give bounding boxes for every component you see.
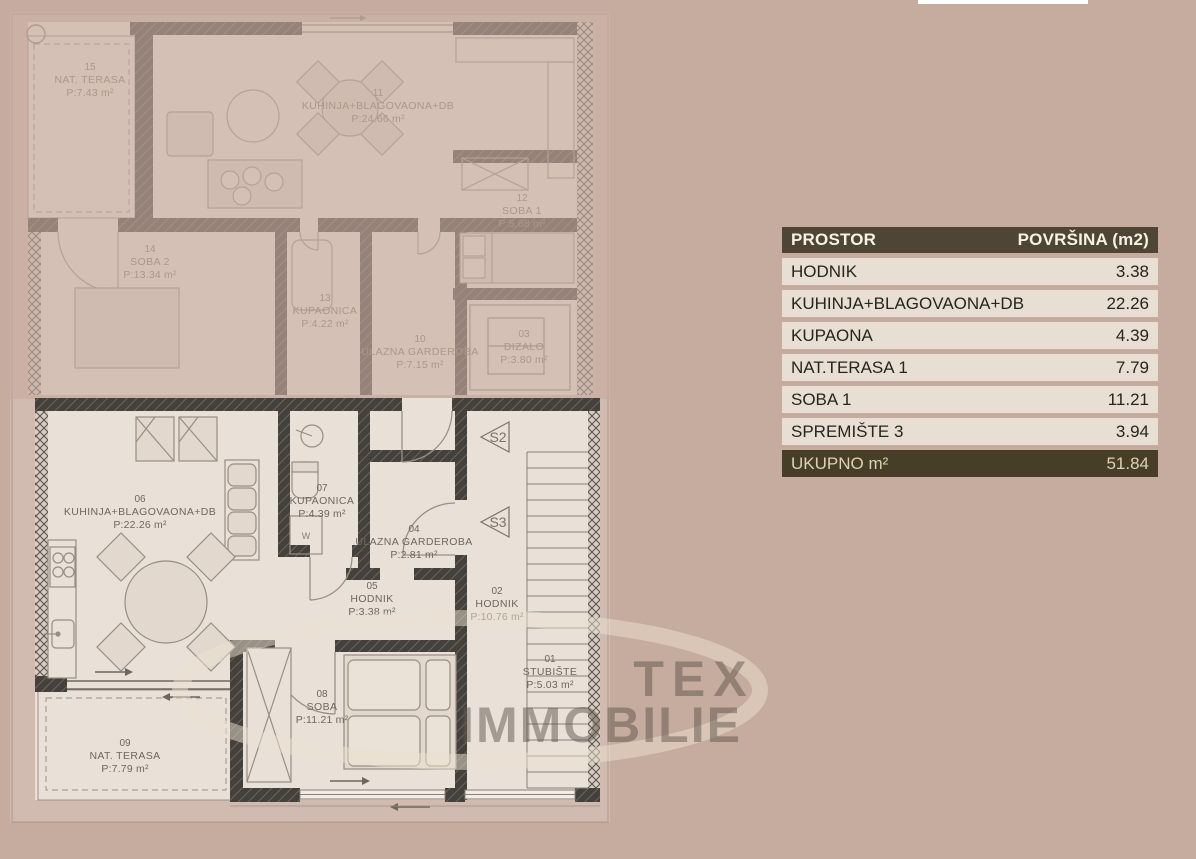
header-area-label: POVRŠINA (m2): [1018, 230, 1149, 250]
area-row: KUPAONA4.39: [782, 322, 1158, 349]
area-row: HODNIK3.38: [782, 258, 1158, 285]
area-row-space: SPREMIŠTE 3: [791, 422, 903, 442]
area-row-space: HODNIK: [791, 262, 857, 282]
area-table: PROSTOR POVRŠINA (m2) HODNIK3.38KUHINJA+…: [782, 227, 1158, 477]
watermark-line2: IMMOBILIE: [460, 697, 742, 753]
kitchen-counter: [44, 540, 76, 678]
area-row-value: 4.39: [1116, 326, 1149, 346]
terrace-09: [38, 690, 234, 800]
stair-marker-label-S2: S2: [489, 429, 506, 445]
area-row: SPREMIŠTE 33.94: [782, 418, 1158, 445]
washer-label: W: [302, 531, 311, 541]
area-table-header: PROSTOR POVRŠINA (m2): [782, 227, 1158, 253]
area-row-value: 7.79: [1116, 358, 1149, 378]
area-row: SOBA 111.21: [782, 386, 1158, 413]
total-space-label: UKUPNO m²: [791, 454, 888, 474]
area-row: NAT.TERASA 17.79: [782, 354, 1158, 381]
total-area-value: 51.84: [1106, 454, 1149, 474]
sofa: [225, 460, 259, 560]
stair-marker-label-S3: S3: [489, 514, 506, 530]
area-row-value: 22.26: [1106, 294, 1149, 314]
area-table-rows: HODNIK3.38KUHINJA+BLAGOVAONA+DB22.26KUPA…: [782, 258, 1158, 445]
area-row-value: 3.38: [1116, 262, 1149, 282]
header-space-label: PROSTOR: [791, 230, 876, 250]
area-row-space: NAT.TERASA 1: [791, 358, 908, 378]
area-row-value: 11.21: [1108, 390, 1149, 410]
area-row-value: 3.94: [1116, 422, 1149, 442]
area-row-space: SOBA 1: [791, 390, 851, 410]
top-white-strip: [918, 0, 1088, 4]
area-row-space: KUPAONA: [791, 326, 873, 346]
wardrobe: [247, 648, 291, 782]
area-total-row: UKUPNO m² 51.84: [782, 450, 1158, 477]
floor-plan-page: 15NAT. TERASAP:7.43 m²11KUHINJA+BLAGOVAO…: [0, 0, 1196, 854]
area-row: KUHINJA+BLAGOVAONA+DB22.26: [782, 290, 1158, 317]
area-row-space: KUHINJA+BLAGOVAONA+DB: [791, 294, 1024, 314]
fade-overlay: [0, 0, 616, 399]
